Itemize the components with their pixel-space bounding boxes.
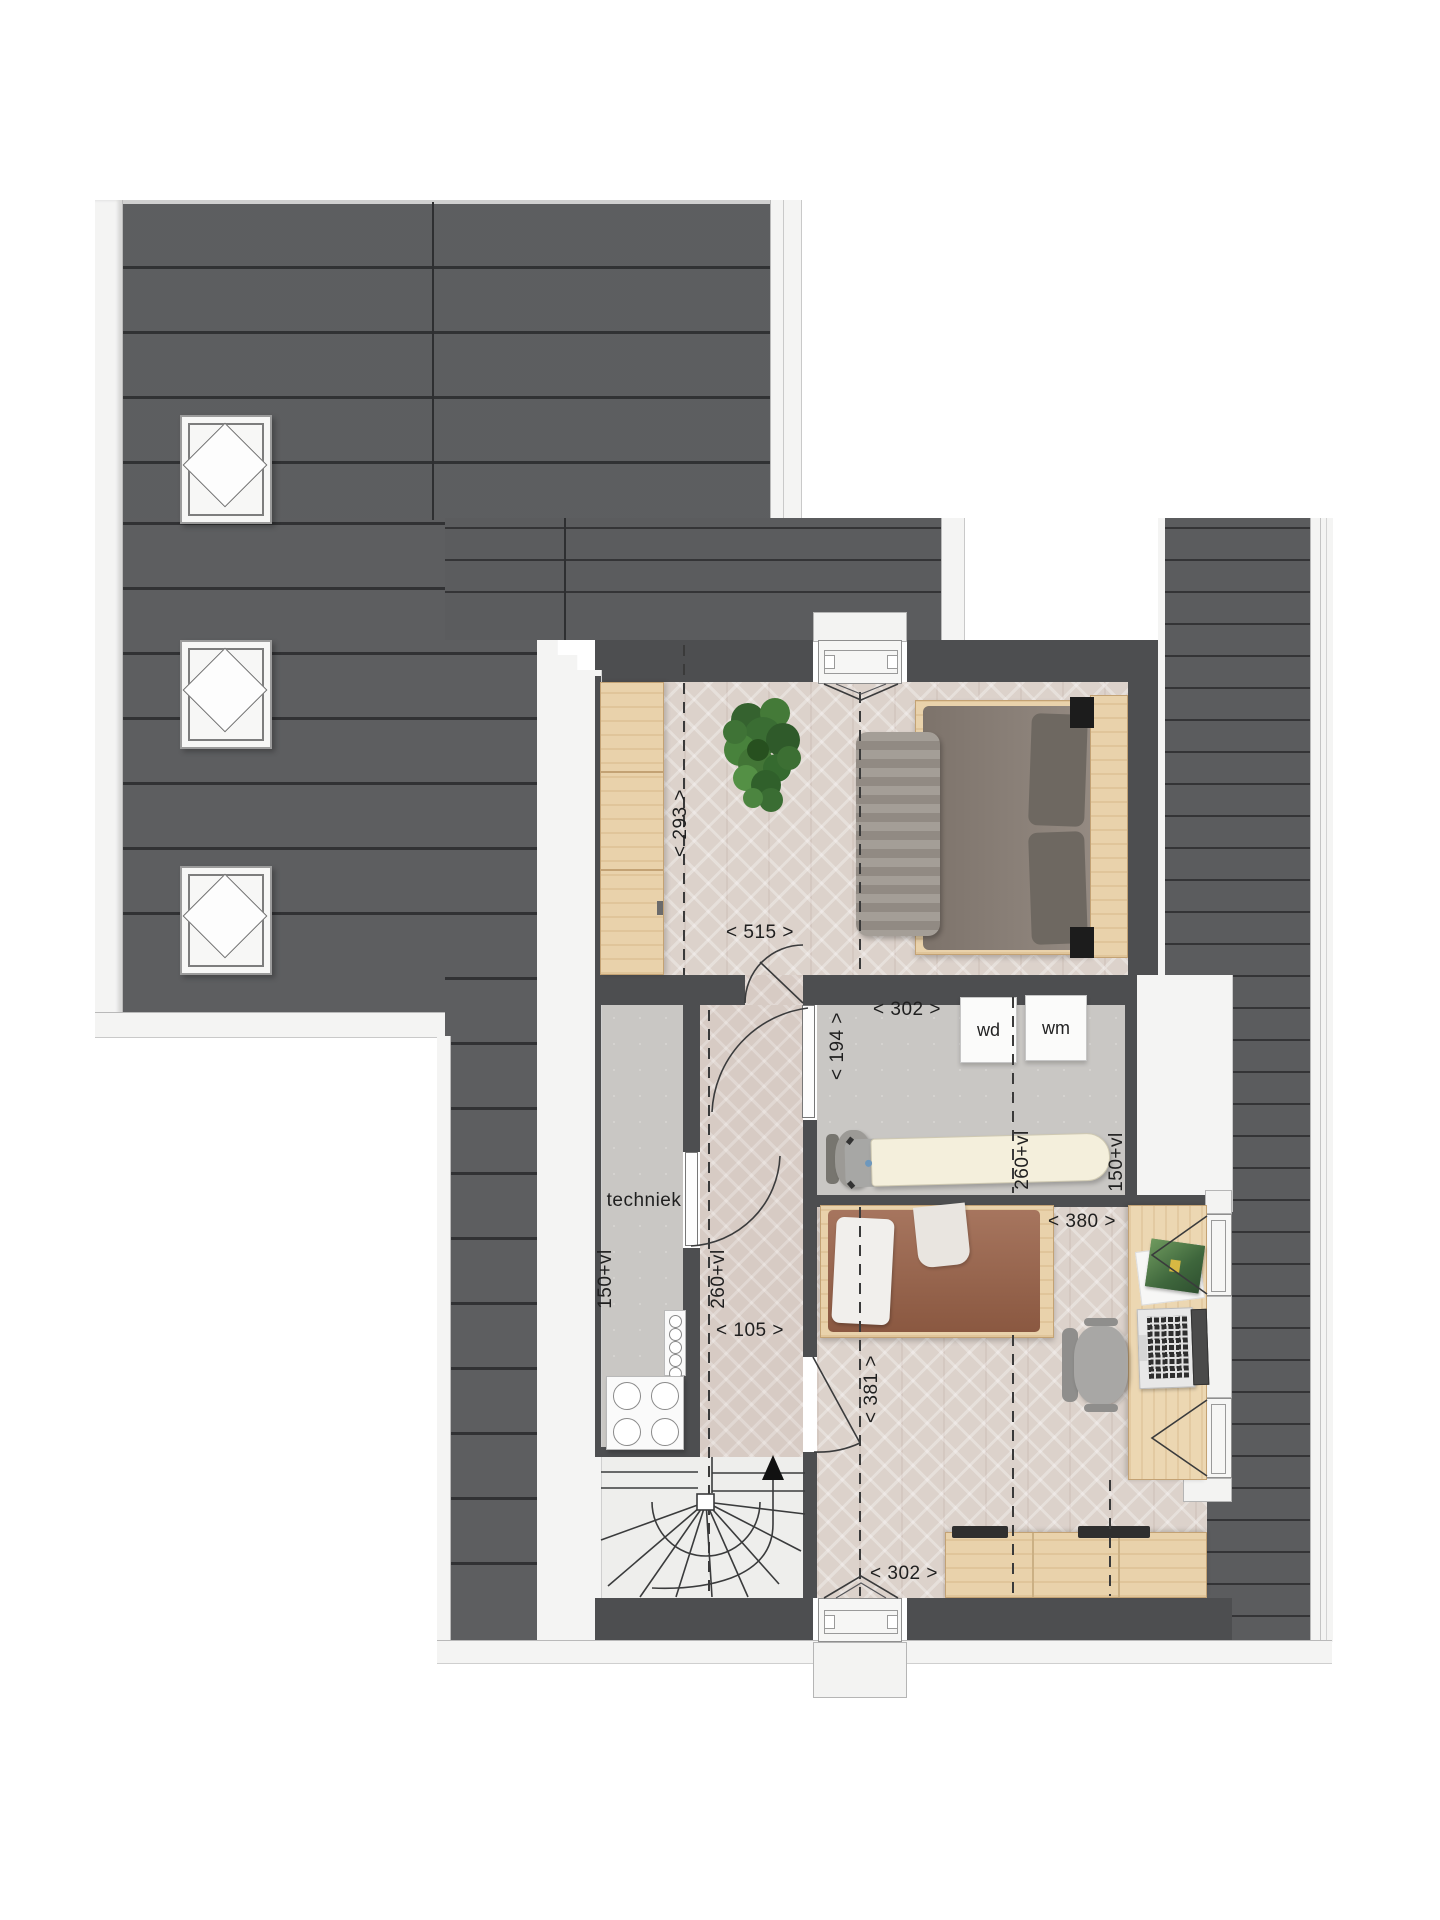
dim-label-master-width: < 515 >: [726, 922, 794, 944]
room-label-techniek: techniek: [607, 1190, 682, 1212]
dim-label-laundry-width: < 302 >: [873, 999, 941, 1021]
dim-label-master-depth: < 293 >: [670, 789, 692, 857]
dim-label-desk-width: < 380 >: [1048, 1211, 1116, 1233]
label-techniek-vl-150: 150+vl: [595, 1249, 617, 1309]
stairs: [601, 1455, 805, 1597]
door-laundry: [712, 1008, 808, 1112]
plan-symbols: [0, 0, 1440, 1920]
right-window-tilt-icon: [1152, 1216, 1207, 1476]
dim-label-laundry-depth: < 194 >: [827, 1012, 849, 1080]
dim-label-bedroom2-depth: < 381 >: [861, 1355, 883, 1423]
door-bedroom2: [813, 1357, 860, 1452]
label-laundry-vl-260: 260+vl: [1012, 1130, 1034, 1190]
floor-plan: wd wm: [0, 0, 1440, 1920]
door-techniek: [691, 1156, 780, 1246]
top-window-tilt-icon: [824, 684, 898, 700]
plant: [713, 680, 823, 825]
dim-label-bedroom2-width: < 302 >: [870, 1563, 938, 1585]
stairs-up-arrow-icon: [762, 1455, 784, 1480]
label-laundry-vl-150: 150+vl: [1106, 1132, 1128, 1192]
door-master: [745, 945, 803, 1003]
label-hall-vl-260: 260+vl: [708, 1249, 730, 1309]
dim-label-hall-width: < 105 >: [716, 1320, 784, 1342]
